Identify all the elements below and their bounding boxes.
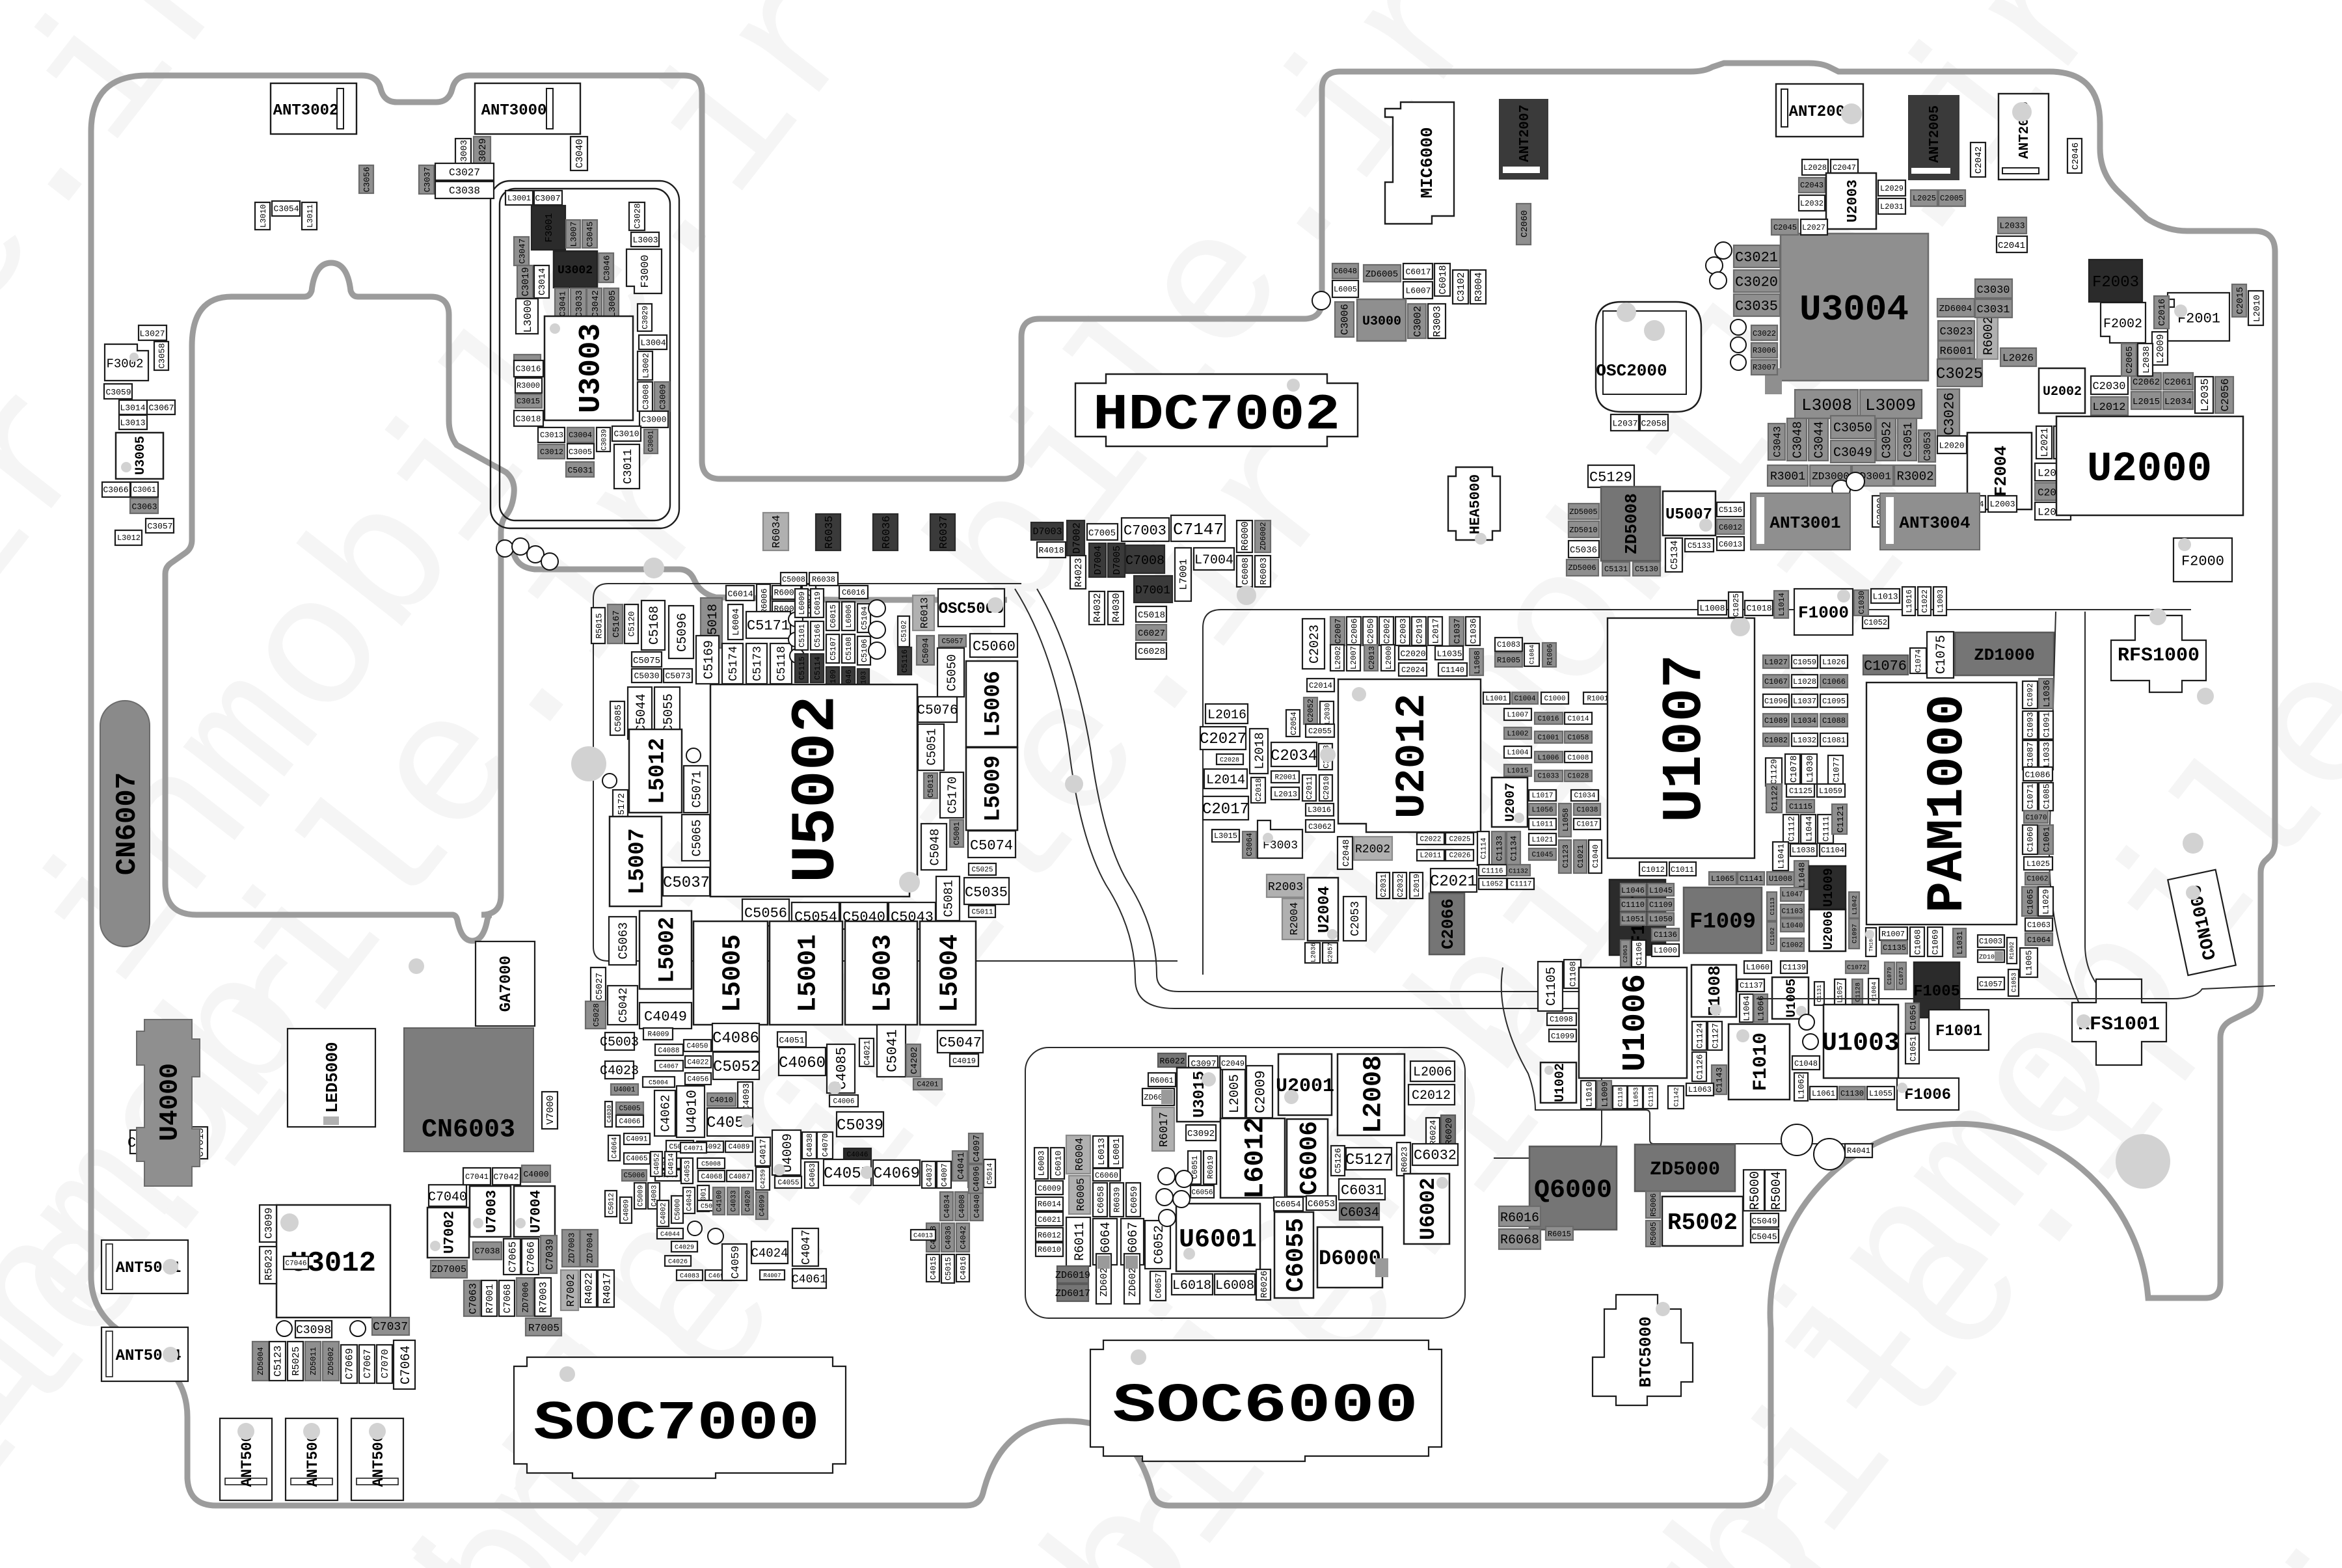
svg-text:C4055: C4055 [777, 1180, 799, 1187]
svg-text:C4013: C4013 [913, 1232, 933, 1239]
svg-text:C5073: C5073 [665, 671, 690, 681]
svg-text:C5101: C5101 [798, 624, 807, 647]
svg-text:C3015: C3015 [517, 397, 540, 406]
svg-text:C3030: C3030 [1976, 284, 2010, 297]
svg-text:C1017: C1017 [1576, 821, 1598, 829]
svg-text:C5123: C5123 [272, 1345, 284, 1377]
svg-text:C5014: C5014 [987, 1163, 995, 1184]
svg-text:R4018: R4018 [1038, 545, 1064, 555]
svg-text:C5028: C5028 [592, 1003, 601, 1027]
svg-text:C1016: C1016 [1537, 716, 1559, 723]
svg-text:L1026: L1026 [1822, 658, 1846, 667]
svg-text:L1004: L1004 [1507, 750, 1528, 757]
svg-text:C6048: C6048 [1334, 267, 1357, 276]
svg-text:C3023: C3023 [1939, 326, 1972, 338]
svg-text:CN6007: CN6007 [111, 772, 144, 875]
svg-text:C1004: C1004 [1514, 696, 1535, 703]
svg-text:R6001: R6001 [1939, 345, 1972, 358]
svg-text:C5096: C5096 [675, 613, 690, 652]
svg-text:C5048: C5048 [928, 828, 942, 865]
svg-text:C4033: C4033 [731, 1190, 738, 1211]
svg-text:R6013: R6013 [919, 597, 930, 629]
svg-text:C5174: C5174 [727, 646, 740, 681]
svg-text:C5012: C5012 [608, 1193, 616, 1214]
svg-text:C4010: C4010 [710, 1096, 733, 1105]
svg-text:R6014: R6014 [1038, 1200, 1061, 1209]
svg-text:C2055: C2055 [1308, 727, 1332, 736]
svg-text:U3003: U3003 [574, 323, 608, 413]
svg-text:C3092: C3092 [1187, 1129, 1215, 1139]
svg-text:C3005: C3005 [569, 448, 592, 457]
svg-text:F3000: F3000 [639, 254, 652, 288]
svg-text:L6007: L6007 [1405, 286, 1431, 295]
svg-text:L1053: L1053 [1633, 1087, 1640, 1107]
svg-text:C5107: C5107 [829, 637, 838, 660]
svg-text:C1073: C1073 [1898, 967, 1905, 984]
svg-text:C4064: C4064 [612, 1137, 619, 1158]
svg-text:C1114: C1114 [1481, 837, 1488, 859]
svg-text:C1070: C1070 [2025, 815, 2047, 822]
svg-text:C2023: C2023 [1308, 625, 1323, 664]
svg-text:L1060: L1060 [1746, 963, 1770, 972]
svg-text:C1040: C1040 [1591, 845, 1600, 868]
svg-text:C6021: C6021 [1038, 1215, 1061, 1224]
svg-text:C2056: C2056 [2220, 378, 2232, 411]
svg-text:L1059: L1059 [1819, 787, 1842, 796]
svg-text:C6059: C6059 [1129, 1186, 1140, 1213]
svg-text:R6023: R6023 [1399, 1146, 1409, 1172]
svg-text:C3013: C3013 [540, 431, 563, 440]
svg-text:C1053: C1053 [2011, 973, 2018, 992]
svg-text:L2034: L2034 [2164, 397, 2192, 407]
svg-text:L7004: L7004 [1194, 553, 1233, 568]
svg-text:C1124: C1124 [1695, 1023, 1704, 1048]
svg-text:C4051: C4051 [779, 1035, 804, 1045]
svg-text:C5108: C5108 [844, 637, 854, 660]
svg-text:L1034: L1034 [1793, 716, 1816, 725]
svg-text:L5007: L5007 [626, 828, 651, 895]
svg-text:C1113: C1113 [1770, 897, 1776, 915]
svg-text:C3063: C3063 [131, 502, 157, 511]
svg-text:ZD5010: ZD5010 [1569, 526, 1597, 535]
svg-text:R3002: R3002 [1896, 469, 1933, 483]
svg-text:L3003: L3003 [632, 235, 658, 245]
svg-text:F1000: F1000 [1798, 603, 1849, 623]
svg-text:C4091: C4091 [626, 1136, 647, 1144]
svg-text:C4056: C4056 [687, 1076, 708, 1084]
svg-text:R5006: R5006 [1649, 1193, 1658, 1217]
svg-text:C1075: C1075 [1934, 635, 1949, 674]
svg-text:L1028: L1028 [1793, 677, 1816, 686]
svg-text:C5131: C5131 [1604, 565, 1628, 574]
svg-text:C5167: C5167 [612, 610, 622, 638]
svg-text:C4099: C4099 [759, 1195, 767, 1216]
svg-text:C1095: C1095 [1822, 697, 1846, 706]
svg-text:L2031: L2031 [1880, 202, 1904, 211]
svg-text:C4093: C4093 [742, 1083, 752, 1111]
svg-text:L1050: L1050 [1649, 915, 1673, 924]
svg-text:L1044: L1044 [1804, 816, 1814, 841]
svg-text:L2010: L2010 [2252, 295, 2263, 322]
svg-text:C5037: C5037 [663, 874, 710, 892]
svg-text:C4014: C4014 [668, 1153, 676, 1174]
svg-text:R5025: R5025 [291, 1346, 302, 1375]
svg-text:ZD7003: ZD7003 [567, 1233, 576, 1264]
svg-text:C5173: C5173 [751, 646, 764, 681]
svg-text:L1042: L1042 [1851, 895, 1859, 915]
svg-text:L1051: L1051 [1621, 915, 1645, 924]
svg-text:L5002: L5002 [656, 917, 680, 983]
svg-text:R4017: R4017 [601, 1273, 613, 1304]
svg-text:R3000: R3000 [517, 381, 540, 390]
svg-text:C1068: C1068 [1913, 929, 1922, 954]
svg-text:C7040: C7040 [428, 1190, 467, 1205]
svg-text:C4021: C4021 [862, 1040, 872, 1065]
svg-text:C4022: C4022 [687, 1059, 708, 1067]
svg-text:C3067: C3067 [148, 403, 174, 412]
svg-text:C5085: C5085 [613, 705, 624, 732]
svg-text:C2058: C2058 [1641, 418, 1666, 428]
svg-text:C1014: C1014 [1567, 716, 1589, 723]
svg-text:C3011: C3011 [622, 449, 635, 484]
svg-text:C2020: C2020 [1400, 649, 1425, 658]
svg-text:C5130: C5130 [1635, 565, 1658, 574]
svg-text:C2025: C2025 [1449, 836, 1470, 844]
svg-text:C3022: C3022 [1753, 329, 1776, 338]
svg-text:L6008: L6008 [1215, 1278, 1254, 1293]
svg-text:C2042: C2042 [1974, 146, 1984, 174]
svg-text:L5005: L5005 [719, 934, 748, 1012]
svg-text:C2018: C2018 [1254, 778, 1263, 802]
svg-text:C2019: C2019 [1414, 618, 1424, 643]
svg-text:R4023: R4023 [1073, 558, 1084, 587]
svg-text:C1003: C1003 [1979, 937, 2002, 946]
svg-text:C4050: C4050 [686, 1043, 708, 1051]
svg-text:L3012: L3012 [117, 534, 141, 543]
svg-text:L2017: L2017 [1431, 618, 1440, 643]
svg-text:R1007: R1007 [1881, 930, 1905, 939]
svg-text:C1008: C1008 [1567, 755, 1589, 763]
svg-text:L3013: L3013 [120, 418, 145, 427]
svg-text:C5170: C5170 [945, 776, 960, 813]
svg-text:C5057: C5057 [941, 638, 963, 646]
svg-text:ANT2005: ANT2005 [1928, 105, 1943, 163]
svg-text:L1066: L1066 [1756, 995, 1766, 1021]
svg-text:D7005: D7005 [1112, 545, 1123, 574]
svg-text:L1056: L1056 [1531, 807, 1553, 815]
svg-text:R1005: R1005 [1497, 656, 1520, 665]
svg-text:C2047: C2047 [1833, 163, 1856, 172]
svg-text:C5063: C5063 [616, 922, 630, 959]
svg-text:C1028: C1028 [1567, 773, 1589, 781]
svg-text:R3001: R3001 [1770, 470, 1805, 483]
svg-text:L1032: L1032 [1793, 736, 1816, 745]
svg-text:C4002: C4002 [660, 1202, 668, 1224]
svg-text:C5013: C5013 [926, 774, 935, 798]
svg-text:C1021: C1021 [1576, 845, 1585, 868]
svg-text:C7037: C7037 [373, 1321, 408, 1334]
svg-text:C1115: C1115 [1789, 802, 1812, 811]
svg-text:R4009: R4009 [647, 1031, 669, 1039]
svg-text:R6035: R6035 [824, 515, 836, 548]
svg-text:C1134: C1134 [1509, 835, 1518, 861]
svg-text:SOC7000: SOC7000 [533, 1394, 820, 1455]
svg-text:C3029: C3029 [641, 306, 650, 329]
svg-text:ANT3001: ANT3001 [1770, 513, 1840, 533]
svg-text:C1033: C1033 [1537, 773, 1559, 781]
svg-text:F1001: F1001 [1935, 1023, 1982, 1040]
svg-text:C5015: C5015 [944, 1257, 953, 1280]
svg-text:C3047: C3047 [517, 238, 527, 264]
svg-text:L3004: L3004 [640, 338, 666, 347]
svg-text:L6006: L6006 [844, 604, 854, 628]
svg-text:C4008: C4008 [958, 1195, 967, 1218]
svg-text:U4000: U4000 [156, 1063, 185, 1141]
svg-text:L6013: L6013 [1097, 1138, 1107, 1165]
svg-text:C4016: C4016 [959, 1256, 968, 1280]
svg-text:C5106: C5106 [860, 639, 869, 662]
svg-text:R4022: R4022 [583, 1273, 595, 1304]
svg-text:C3059: C3059 [105, 387, 131, 397]
svg-text:C4052: C4052 [654, 1153, 662, 1174]
svg-text:C7046: C7046 [285, 1260, 306, 1268]
svg-text:ZD5000: ZD5000 [1650, 1159, 1720, 1181]
svg-text:L1058: L1058 [1561, 808, 1570, 831]
svg-text:L1016: L1016 [1905, 589, 1914, 613]
svg-text:L2007: L2007 [1349, 646, 1358, 669]
svg-text:C5035: C5035 [965, 884, 1008, 900]
svg-text:C4087: C4087 [729, 1174, 750, 1182]
svg-text:C2013: C2013 [1367, 646, 1377, 669]
svg-text:C1022: C1022 [1920, 589, 1930, 613]
svg-text:F2004: F2004 [1991, 446, 2011, 496]
svg-text:F2000: F2000 [2181, 553, 2224, 569]
svg-text:C3038: C3038 [449, 185, 480, 196]
svg-text:L2015: L2015 [2133, 397, 2160, 407]
svg-text:C4097: C4097 [972, 1135, 982, 1162]
svg-text:C2010: C2010 [1322, 776, 1331, 800]
svg-text:C4089: C4089 [728, 1144, 749, 1152]
svg-text:C3016: C3016 [515, 364, 541, 373]
svg-text:L2019: L2019 [1412, 874, 1421, 897]
svg-text:L1065: L1065 [1711, 874, 1734, 884]
svg-text:C1084: C1084 [1529, 645, 1536, 664]
svg-text:C5051: C5051 [924, 728, 939, 765]
svg-text:C3048: C3048 [1790, 421, 1805, 458]
svg-text:C1102: C1102 [1770, 927, 1776, 945]
svg-text:C3008: C3008 [641, 384, 651, 409]
svg-text:R7003: R7003 [537, 1282, 549, 1313]
svg-text:U5002: U5002 [781, 696, 852, 883]
svg-text:ZD5008: ZD5008 [1622, 493, 1641, 554]
svg-text:C5027: C5027 [595, 973, 605, 1000]
svg-text:C1098: C1098 [1550, 1015, 1573, 1024]
svg-text:L6005: L6005 [1334, 285, 1357, 294]
svg-text:L2005: L2005 [1228, 1074, 1243, 1113]
svg-text:C6053: C6053 [1308, 1199, 1335, 1210]
svg-text:C1131: C1131 [1816, 984, 1823, 1002]
svg-text:R7002: R7002 [565, 1273, 578, 1306]
svg-text:C3028: C3028 [632, 203, 642, 228]
svg-text:C4043: C4043 [686, 1189, 694, 1211]
svg-text:U4010: U4010 [684, 1090, 700, 1133]
svg-text:C1093: C1093 [2025, 712, 2035, 737]
svg-text:C1129: C1129 [1769, 759, 1779, 784]
svg-text:C7065: C7065 [507, 1241, 518, 1273]
svg-text:R5015: R5015 [594, 613, 604, 638]
svg-text:C6014: C6014 [727, 589, 753, 599]
svg-text:R3003: R3003 [1431, 306, 1443, 337]
svg-text:R4041: R4041 [1847, 1146, 1870, 1156]
svg-text:V7000: V7000 [545, 1095, 556, 1124]
svg-text:L2009: L2009 [2155, 334, 2166, 363]
svg-text:U3005: U3005 [133, 436, 148, 475]
svg-text:C3043: C3043 [1771, 426, 1783, 457]
svg-text:C4259: C4259 [760, 1169, 767, 1189]
svg-text:C1121: C1121 [1836, 805, 1846, 833]
svg-text:L1013: L1013 [1872, 591, 1898, 601]
svg-text:C4030: C4030 [606, 1105, 613, 1122]
svg-text:C1057: C1057 [1979, 980, 2002, 989]
svg-text:C5004: C5004 [649, 1079, 668, 1087]
svg-text:C6019: C6019 [813, 591, 822, 615]
svg-text:C5127: C5127 [1345, 1152, 1392, 1169]
svg-text:L1035: L1035 [1436, 649, 1462, 658]
svg-text:ZD5002: ZD5002 [327, 1347, 336, 1375]
svg-text:C5075: C5075 [633, 656, 660, 666]
svg-text:U1007: U1007 [1653, 655, 1717, 822]
svg-text:R5000: R5000 [1748, 1171, 1763, 1210]
svg-text:C7067: C7067 [362, 1349, 373, 1378]
svg-text:C1132: C1132 [1509, 868, 1528, 875]
svg-text:L1009: L1009 [1600, 1081, 1609, 1107]
svg-text:C4062: C4062 [658, 1094, 673, 1131]
svg-text:C2021: C2021 [1430, 873, 1477, 891]
svg-text:U3004: U3004 [1799, 289, 1909, 331]
svg-text:C5042: C5042 [617, 988, 630, 1023]
svg-text:U7004: U7004 [528, 1190, 544, 1233]
svg-text:L3002: L3002 [641, 353, 651, 378]
svg-text:L6012: L6012 [1239, 1117, 1271, 1199]
svg-text:C3099: C3099 [263, 1208, 275, 1239]
svg-text:L2036: L2036 [1310, 943, 1317, 962]
svg-text:C5120: C5120 [626, 611, 636, 636]
svg-text:C2022: C2022 [1420, 836, 1441, 844]
svg-text:C4046: C4046 [846, 1152, 868, 1159]
svg-text:C5049: C5049 [1751, 1216, 1777, 1226]
svg-text:R5005: R5005 [1649, 1222, 1658, 1245]
svg-text:L1061: L1061 [1812, 1089, 1835, 1098]
svg-text:C2005: C2005 [1940, 194, 1963, 203]
svg-text:C4024: C4024 [751, 1246, 788, 1260]
svg-text:C2006: C2006 [1349, 618, 1359, 643]
svg-text:C6028: C6028 [1138, 647, 1165, 657]
svg-text:U2004: U2004 [1316, 886, 1334, 933]
svg-text:C5102: C5102 [901, 620, 909, 642]
svg-text:C6015: C6015 [829, 604, 838, 628]
svg-text:LED5000: LED5000 [323, 1042, 342, 1113]
svg-text:L3008: L3008 [1801, 396, 1852, 415]
svg-text:L1010: L1010 [1584, 1081, 1594, 1107]
svg-text:C5115: C5115 [798, 656, 807, 680]
svg-text:C1099: C1099 [1551, 1032, 1574, 1041]
svg-text:C3046: C3046 [602, 255, 612, 280]
svg-text:L2038: L2038 [2142, 346, 2152, 373]
svg-text:L1000: L1000 [1654, 946, 1677, 955]
svg-text:C2017: C2017 [1202, 801, 1249, 818]
svg-text:C3002: C3002 [1412, 306, 1423, 337]
svg-text:U1009: U1009 [1822, 868, 1837, 907]
svg-text:C4100: C4100 [716, 1190, 724, 1211]
svg-text:L3014: L3014 [120, 403, 145, 412]
svg-text:L2037: L2037 [1612, 418, 1637, 428]
svg-text:L1011: L1011 [1531, 821, 1553, 829]
svg-text:U1008: U1008 [1769, 874, 1792, 884]
svg-text:C5008: C5008 [782, 575, 805, 584]
svg-text:C1064: C1064 [2027, 936, 2051, 945]
svg-text:ZD6005: ZD6005 [1366, 269, 1398, 280]
svg-text:C7066: C7066 [525, 1241, 537, 1273]
svg-text:C7008: C7008 [1125, 554, 1164, 569]
svg-text:L5006: L5006 [982, 671, 1006, 737]
svg-text:HDC7002: HDC7002 [1093, 387, 1340, 444]
svg-text:F2003: F2003 [2092, 274, 2139, 291]
svg-text:L2026: L2026 [2002, 352, 2034, 364]
svg-text:R6036: R6036 [881, 515, 893, 548]
svg-text:C5116: C5116 [900, 649, 909, 673]
svg-text:L1033: L1033 [2041, 742, 2051, 767]
svg-text:R6016: R6016 [1500, 1211, 1539, 1226]
svg-text:C2032: C2032 [1396, 874, 1405, 897]
svg-text:L1046: L1046 [1621, 886, 1645, 895]
svg-text:ZD7004: ZD7004 [585, 1232, 595, 1263]
svg-text:C2034: C2034 [1271, 748, 1317, 765]
svg-text:C2031: C2031 [1379, 874, 1388, 897]
svg-text:C1137: C1137 [1740, 981, 1763, 990]
svg-text:C3027: C3027 [449, 167, 480, 178]
svg-text:C3056: C3056 [362, 167, 371, 192]
svg-text:C2066: C2066 [1438, 899, 1458, 949]
svg-text:C3007: C3007 [535, 193, 560, 203]
svg-text:C1062: C1062 [2026, 876, 2048, 884]
svg-text:C2014: C2014 [1309, 681, 1332, 690]
svg-text:C1106: C1106 [1635, 942, 1644, 966]
svg-text:C1066: C1066 [1822, 677, 1846, 686]
svg-text:L6004: L6004 [731, 608, 742, 636]
svg-text:R6010: R6010 [1038, 1245, 1061, 1254]
svg-text:C1108: C1108 [1568, 961, 1578, 986]
svg-text:C5000: C5000 [675, 1198, 682, 1220]
svg-text:C2045: C2045 [1773, 223, 1797, 232]
svg-text:C6031: C6031 [1341, 1182, 1384, 1198]
svg-text:C1048: C1048 [1794, 1059, 1818, 1068]
svg-text:R1002: R1002 [2009, 941, 2015, 959]
svg-text:C4023: C4023 [600, 1064, 639, 1079]
svg-text:C1104: C1104 [1821, 846, 1844, 855]
svg-text:C6013: C6013 [1719, 540, 1742, 549]
svg-text:L1048: L1048 [1797, 862, 1807, 887]
svg-text:C3066: C3066 [103, 485, 128, 494]
svg-text:R1006: R1006 [1547, 643, 1555, 665]
svg-text:R2004: R2004 [1289, 902, 1301, 935]
svg-text:R6022: R6022 [1159, 1056, 1185, 1066]
svg-text:L2000: L2000 [1384, 646, 1393, 669]
svg-text:C3033: C3033 [574, 290, 585, 318]
svg-text:L2035: L2035 [2200, 378, 2212, 411]
svg-text:L1037: L1037 [1793, 697, 1816, 706]
svg-text:ANT3002: ANT3002 [273, 102, 339, 120]
svg-text:C3035: C3035 [1735, 298, 1778, 314]
